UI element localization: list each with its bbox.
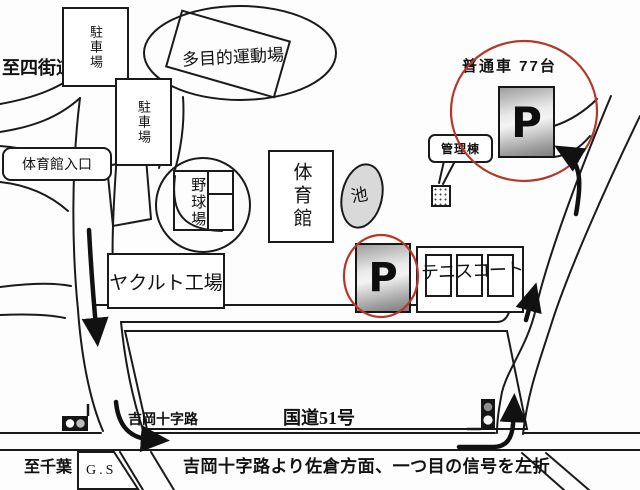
yakult-factory-label: ヤクルト工場: [109, 268, 222, 295]
main-parking-capacity-label: 普通車 77台: [462, 58, 580, 75]
pond-label: 池: [349, 185, 369, 207]
admin-building-structure: [431, 185, 451, 207]
parking-entrance-edge-bottom: [554, 136, 590, 157]
road-edge-entrance-bottom: [0, 182, 68, 211]
parking-sign-tennis: P: [355, 243, 411, 313]
tennis-court-label: テニスコート: [416, 259, 529, 284]
gym-entrance-label: 体育館入口: [22, 154, 92, 174]
gas-station-label: G.S: [86, 463, 116, 479]
access-map-canvas: 至四街道駅 駐車場 駐車場 多目的運動場 体育館入口 野球場 体育館 池 管理棟…: [0, 0, 640, 490]
parking-lot-2-label: 駐車場: [134, 100, 153, 145]
parking-symbol-main: P: [511, 98, 542, 147]
parking-entrance-edge-top: [554, 99, 597, 126]
admin-building-callout: 管理棟: [428, 134, 493, 163]
crossroads-label: 吉岡十字路: [128, 413, 198, 429]
admin-building-label: 管理棟: [441, 140, 480, 157]
yakult-factory-box: ヤクルト工場: [107, 253, 225, 309]
road-edge-stub-top: [0, 284, 71, 287]
admin-callout-tail-1: [439, 161, 444, 183]
parking-lot-2-box: 駐車場: [115, 78, 172, 166]
direction-instruction: 吉岡十字路より佐倉方面、一つ目の信号を左折: [183, 457, 535, 477]
road-edge-stub-bottom: [0, 314, 65, 318]
gymnasium-label: 体育館: [288, 162, 315, 231]
gymnasium-box: 体育館: [268, 150, 334, 243]
road-edge-right-east: [523, 116, 640, 434]
admin-callout-tail-2: [443, 161, 455, 184]
internal-road-edge-2: [175, 97, 184, 170]
parking-symbol-tennis: P: [368, 255, 397, 301]
gym-entrance-callout: 体育館入口: [2, 147, 112, 181]
road-edge-station-bottom: [0, 98, 80, 132]
road-edge-right-below51-right: [546, 453, 589, 490]
route51-label: 国道51号: [283, 408, 355, 429]
baseball-ground-label: 野球場: [189, 177, 206, 233]
road-edge-below51-right: [151, 452, 174, 490]
parking-lot-1-box: 駐車場: [62, 7, 129, 87]
parking-lot-1-label: 駐車場: [86, 25, 105, 70]
parking-sign-main: P: [498, 86, 555, 158]
to-chiba-label: 至千葉: [24, 459, 72, 477]
